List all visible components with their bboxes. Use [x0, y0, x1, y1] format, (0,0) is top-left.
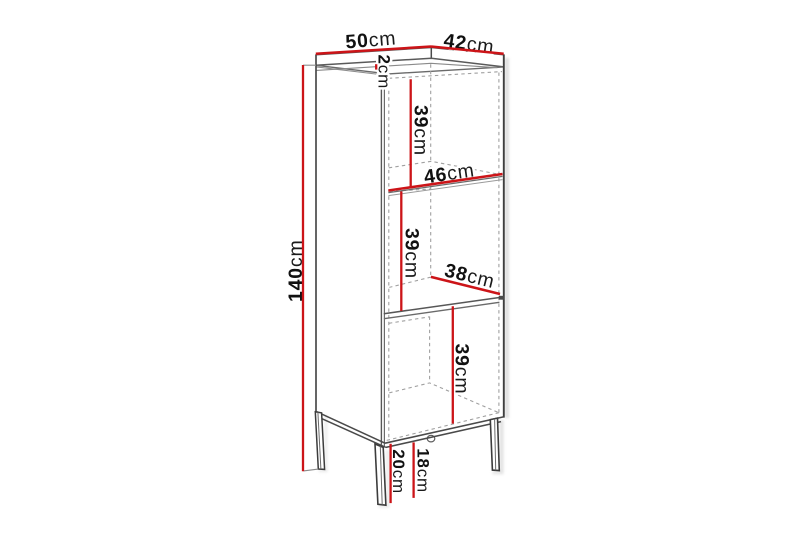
svg-text:18cm: 18cm	[413, 448, 432, 493]
svg-text:20cm: 20cm	[389, 449, 408, 494]
svg-text:2cm: 2cm	[374, 55, 393, 90]
svg-text:39cm: 39cm	[409, 105, 431, 156]
svg-text:39cm: 39cm	[401, 228, 423, 279]
